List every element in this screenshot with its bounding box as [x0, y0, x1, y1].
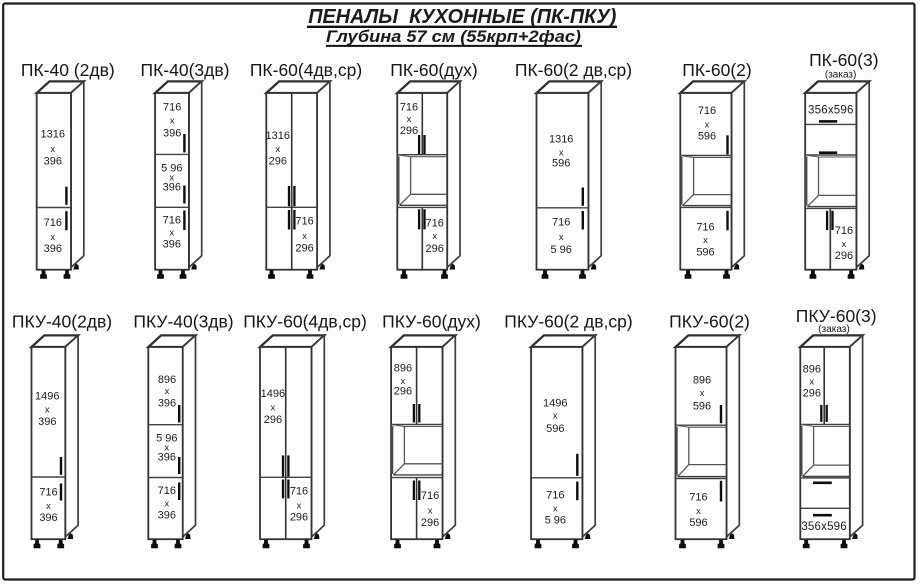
svg-text:896: 896	[803, 364, 821, 376]
svg-text:716: 716	[835, 225, 853, 237]
svg-text:396: 396	[163, 128, 181, 140]
svg-text:x: x	[50, 144, 55, 155]
svg-text:1496: 1496	[261, 388, 285, 400]
svg-text:716: 716	[546, 489, 564, 501]
svg-text:ПК-60(2): ПК-60(2)	[682, 60, 751, 80]
svg-text:ПК-60(2 дв,ср): ПК-60(2 дв,ср)	[515, 60, 632, 80]
svg-text:x: x	[696, 506, 701, 517]
svg-text:x: x	[50, 232, 55, 243]
svg-text:716: 716	[163, 101, 181, 113]
svg-text:296: 296	[803, 388, 821, 400]
svg-text:ПК-40 (2дв): ПК-40 (2дв)	[21, 60, 115, 80]
svg-text:716: 716	[163, 215, 181, 227]
svg-text:896: 896	[693, 374, 711, 386]
svg-text:596: 596	[546, 423, 564, 435]
svg-text:x: x	[275, 144, 280, 155]
svg-text:ПК-40(3дв): ПК-40(3дв)	[141, 60, 230, 80]
svg-text:ПКУ-60(2): ПКУ-60(2)	[669, 312, 750, 332]
svg-text:716: 716	[158, 485, 176, 497]
svg-text:716: 716	[696, 221, 714, 233]
svg-text:296: 296	[426, 243, 444, 255]
svg-text:x: x	[169, 228, 174, 239]
svg-text:ПКУ-60(дух): ПКУ-60(дух)	[382, 312, 481, 332]
svg-text:716: 716	[689, 492, 707, 504]
svg-text:396: 396	[163, 182, 181, 194]
svg-text:x: x	[302, 231, 307, 242]
svg-text:356х596: 356х596	[801, 521, 847, 533]
svg-text:x: x	[46, 501, 51, 512]
svg-text:396: 396	[158, 452, 176, 464]
svg-text:396: 396	[38, 416, 56, 428]
svg-text:x: x	[809, 377, 814, 388]
svg-text:ПКУ-40(3дв): ПКУ-40(3дв)	[133, 312, 233, 332]
svg-text:596: 596	[689, 517, 707, 529]
svg-text:1496: 1496	[543, 398, 567, 410]
svg-text:Глубина 57 см (55крп+2фас): Глубина 57 см (55крп+2фас)	[326, 27, 581, 46]
svg-text:896: 896	[158, 374, 176, 386]
svg-text:1316: 1316	[549, 134, 573, 146]
svg-text:396: 396	[158, 397, 176, 409]
svg-text:356х596: 356х596	[808, 105, 854, 117]
svg-text:x: x	[165, 386, 170, 397]
svg-text:296: 296	[835, 250, 853, 262]
svg-text:x: x	[407, 114, 412, 125]
svg-text:716: 716	[421, 490, 439, 502]
svg-text:x: x	[297, 501, 302, 512]
svg-text:ПК-60(4дв,ср): ПК-60(4дв,ср)	[250, 60, 362, 80]
svg-text:ПКУ-60(2 дв,ср): ПКУ-60(2 дв,ср)	[504, 312, 632, 332]
svg-text:716: 716	[44, 217, 62, 229]
svg-text:716: 716	[290, 485, 308, 497]
svg-text:396: 396	[158, 510, 176, 522]
svg-text:1316: 1316	[41, 129, 65, 141]
svg-text:596: 596	[696, 247, 714, 259]
svg-text:x: x	[164, 498, 169, 509]
svg-text:x: x	[700, 388, 705, 399]
svg-text:x: x	[553, 504, 558, 515]
svg-text:5 96: 5 96	[545, 515, 566, 527]
svg-text:296: 296	[295, 243, 313, 255]
svg-text:ПК-60(дух): ПК-60(дух)	[390, 60, 477, 80]
svg-text:296: 296	[421, 517, 439, 529]
svg-text:396: 396	[39, 512, 57, 524]
svg-text:5 96: 5 96	[550, 244, 571, 256]
svg-text:296: 296	[269, 155, 287, 167]
svg-text:296: 296	[400, 125, 418, 137]
svg-text:x: x	[45, 404, 50, 415]
svg-text:x: x	[428, 506, 433, 517]
svg-text:1496: 1496	[35, 390, 59, 402]
svg-text:(заказ): (заказ)	[825, 70, 856, 81]
svg-text:ПКУ-40(2дв): ПКУ-40(2дв)	[12, 312, 112, 332]
svg-text:x: x	[170, 116, 175, 127]
svg-text:716: 716	[426, 218, 444, 230]
svg-text:ПК-60(3): ПК-60(3)	[809, 50, 878, 70]
svg-text:396: 396	[44, 243, 62, 255]
svg-text:x: x	[703, 235, 708, 246]
svg-text:x: x	[271, 402, 276, 413]
svg-text:x: x	[553, 411, 558, 422]
svg-text:596: 596	[693, 400, 711, 412]
svg-text:896: 896	[394, 362, 412, 374]
svg-text:716: 716	[552, 217, 570, 229]
svg-text:716: 716	[400, 102, 418, 114]
svg-text:296: 296	[264, 414, 282, 426]
svg-text:ПКУ-60(3): ПКУ-60(3)	[796, 306, 877, 326]
svg-text:ПКУ-60(4дв,ср): ПКУ-60(4дв,ср)	[243, 312, 367, 332]
svg-text:596: 596	[552, 158, 570, 170]
svg-text:x: x	[842, 239, 847, 250]
svg-text:396: 396	[44, 156, 62, 168]
svg-text:1316: 1316	[266, 130, 290, 142]
svg-text:396: 396	[163, 239, 181, 251]
svg-text:x: x	[559, 232, 564, 243]
svg-text:ПЕНАЛЫ КУХОННЫЕ (ПК-ПКУ): ПЕНАЛЫ КУХОННЫЕ (ПК-ПКУ)	[308, 5, 616, 28]
svg-text:716: 716	[295, 216, 313, 228]
svg-text:716: 716	[698, 105, 716, 117]
svg-text:x: x	[432, 231, 437, 242]
svg-text:(заказ): (заказ)	[818, 324, 849, 335]
svg-text:296: 296	[290, 511, 308, 523]
svg-text:716: 716	[39, 487, 57, 499]
svg-text:596: 596	[698, 130, 716, 142]
svg-text:296: 296	[394, 385, 412, 397]
svg-text:x: x	[705, 119, 710, 130]
